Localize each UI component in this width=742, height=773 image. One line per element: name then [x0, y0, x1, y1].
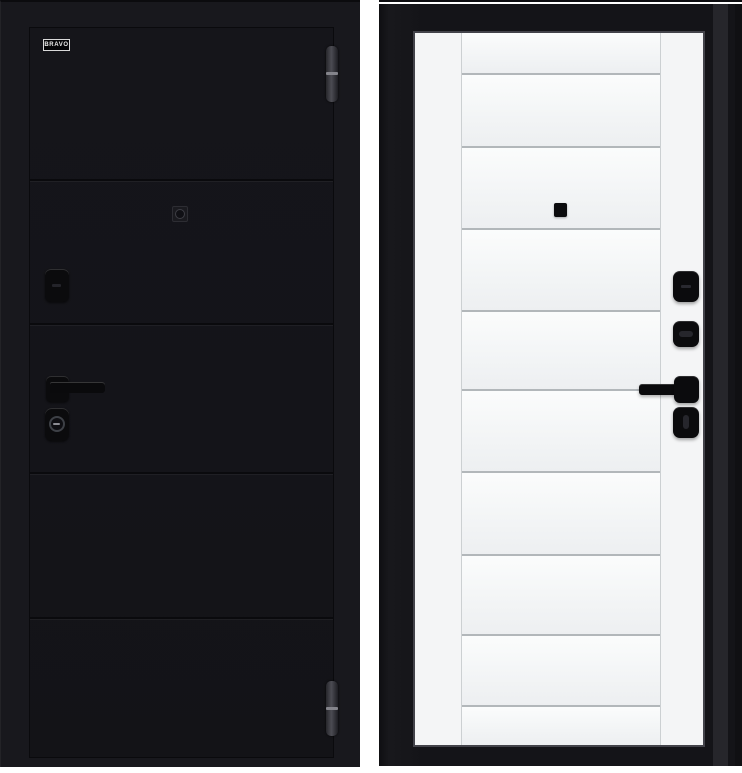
lock-knob-turn	[683, 415, 689, 429]
door-panel	[462, 707, 660, 745]
door-panel	[462, 556, 660, 634]
cylinder-lock	[45, 408, 69, 441]
thumbturn-knob	[679, 331, 693, 337]
door-panel	[462, 33, 660, 73]
frame-highlight-band	[713, 4, 728, 766]
frame-top-edge	[379, 0, 742, 2]
door-panel	[462, 312, 660, 389]
door-panel-groove	[30, 323, 333, 325]
door-panel	[462, 230, 660, 310]
door-panel	[462, 473, 660, 554]
frame-right-edge	[735, 4, 742, 766]
night-latch-cover	[673, 271, 699, 302]
lock-knob	[673, 407, 699, 438]
exterior-door-leaf: BRAVO	[29, 27, 334, 758]
keyhole-escutcheon	[45, 269, 69, 302]
hinge-bottom	[326, 681, 338, 736]
cylinder-keyhole	[53, 423, 60, 425]
leaf-panel-field	[462, 33, 660, 745]
brand-logo-text: BRAVO	[44, 42, 68, 48]
brand-logo: BRAVO	[43, 39, 70, 51]
hinge-top	[326, 46, 338, 102]
interior-door-view	[379, 0, 742, 766]
door-panel-groove	[30, 617, 333, 619]
door-panel-groove	[30, 472, 333, 474]
product-photo-canvas: BRAVO	[0, 0, 742, 773]
door-panel	[462, 391, 660, 471]
keyhole-slot	[52, 284, 61, 287]
peephole-lens	[175, 209, 185, 219]
latch-slot	[681, 285, 691, 288]
door-panel	[462, 75, 660, 146]
hinge-band	[326, 72, 338, 75]
lever-handle	[639, 384, 677, 395]
peephole	[554, 203, 567, 217]
peephole	[172, 206, 188, 222]
door-panel	[462, 636, 660, 705]
lever-handle	[50, 382, 105, 393]
thumbturn	[673, 321, 699, 347]
hinge-band	[326, 707, 338, 710]
exterior-door-view: BRAVO	[0, 0, 360, 767]
handle-rosette	[674, 376, 699, 403]
door-panel-groove	[30, 179, 333, 181]
